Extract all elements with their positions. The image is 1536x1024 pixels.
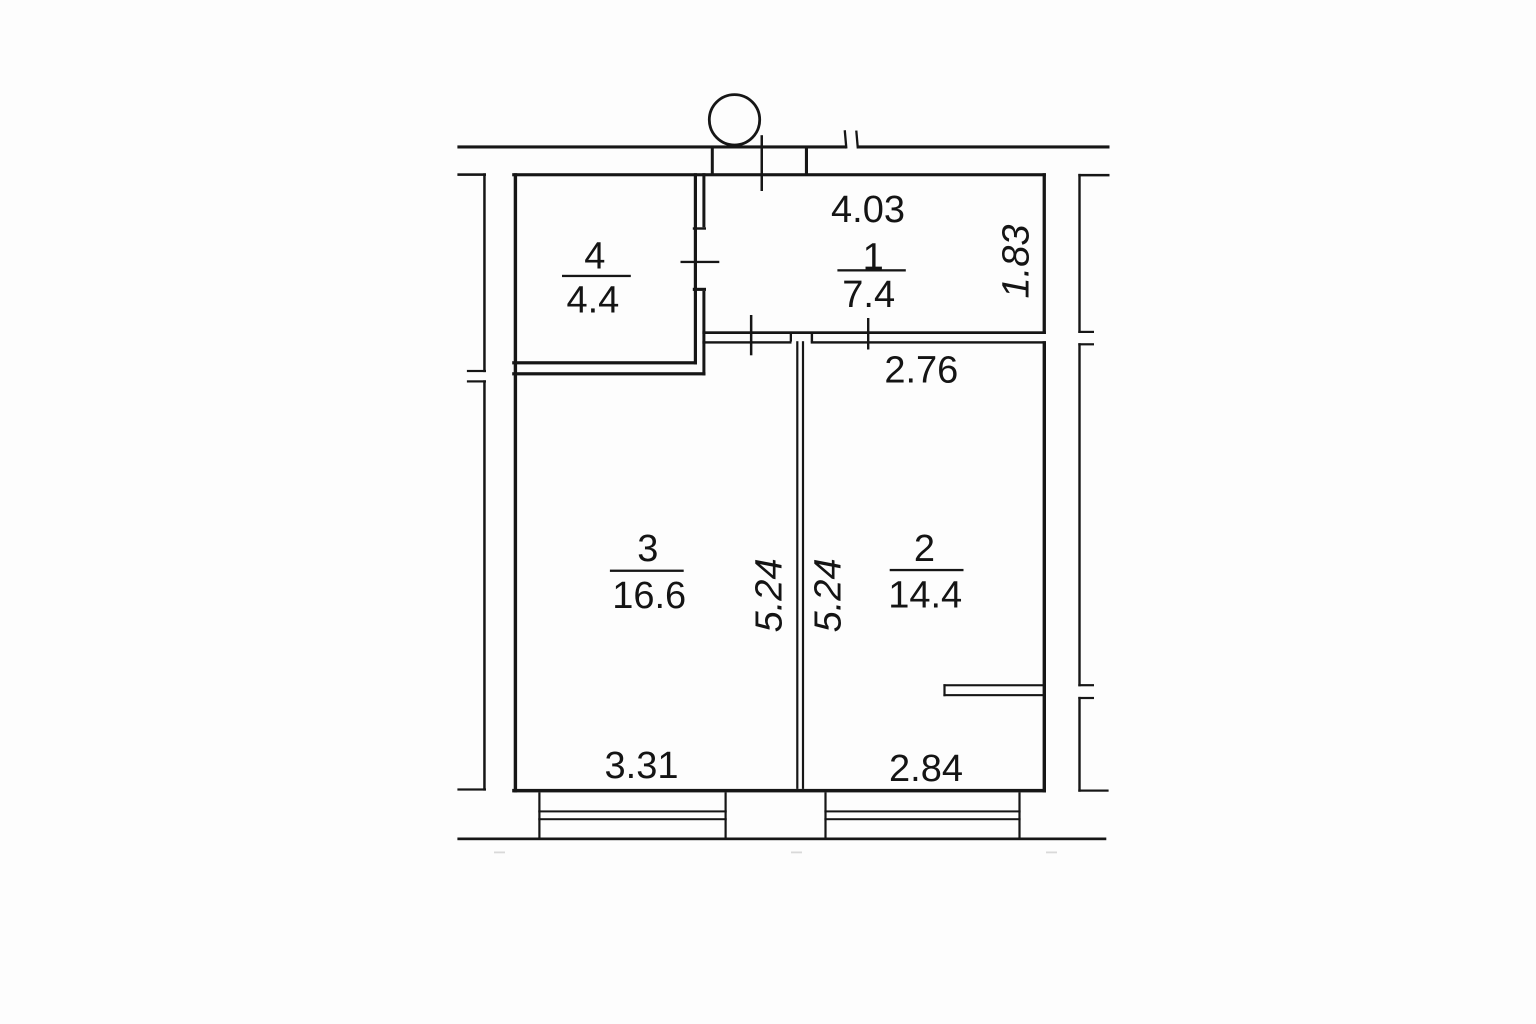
svg-text:2.84: 2.84 — [889, 748, 963, 790]
svg-text:2: 2 — [914, 528, 935, 570]
svg-text:7.4: 7.4 — [842, 274, 895, 316]
svg-text:16.6: 16.6 — [612, 575, 686, 617]
svg-text:3.31: 3.31 — [605, 745, 679, 787]
svg-text:14.4: 14.4 — [888, 574, 962, 616]
svg-text:4.03: 4.03 — [831, 189, 905, 231]
svg-text:5.24: 5.24 — [748, 558, 790, 632]
svg-text:1.83: 1.83 — [995, 225, 1037, 299]
svg-text:2.76: 2.76 — [884, 350, 958, 392]
svg-text:1: 1 — [863, 237, 884, 279]
svg-text:4: 4 — [584, 235, 605, 277]
svg-text:4.4: 4.4 — [566, 279, 619, 321]
svg-text:5.24: 5.24 — [807, 558, 849, 632]
svg-text:3: 3 — [637, 528, 658, 570]
